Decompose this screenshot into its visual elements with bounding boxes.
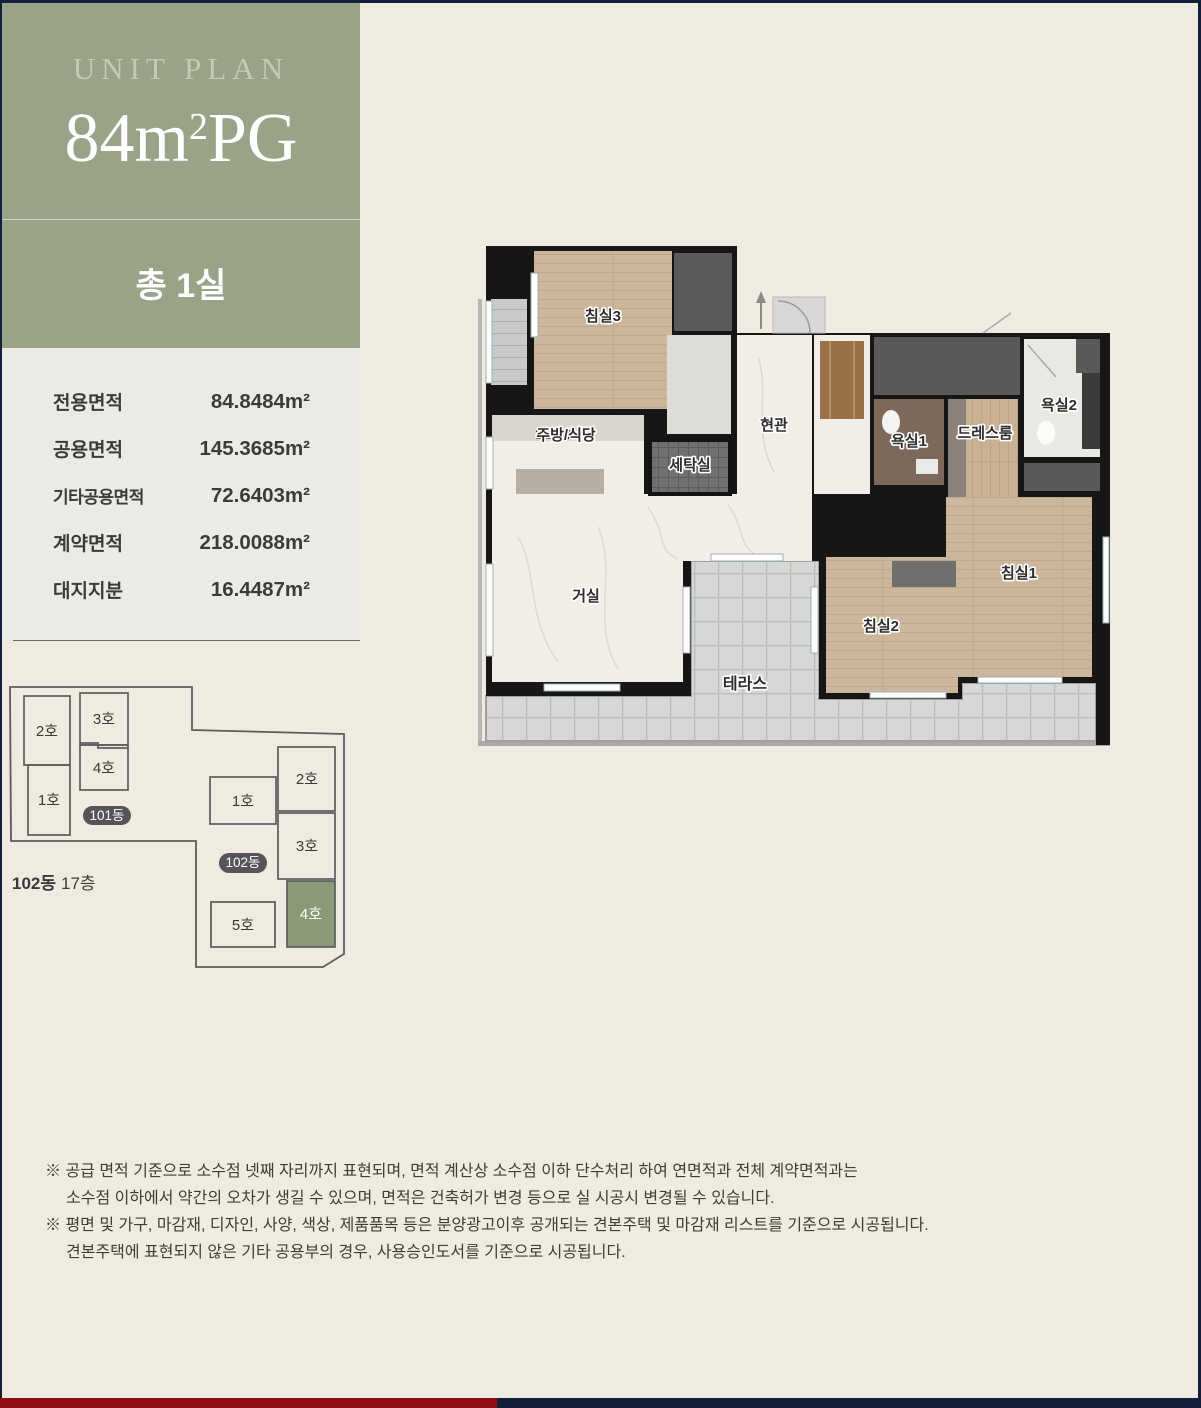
toilet2 [1037, 421, 1055, 445]
unit-size-main: 84m [65, 100, 189, 177]
entry-floor [737, 335, 812, 494]
room-count: 총 1실 [2, 258, 360, 307]
label-bath2: 욕실2 [1041, 397, 1077, 414]
sink1 [916, 459, 938, 474]
bedroom3-floor [534, 251, 672, 409]
label-laundry: 세탁실 [669, 456, 710, 474]
area-table: 전용면적 84.8484m² 공용면적 145.3685m² 기타공용면적 72… [2, 348, 360, 641]
bedroom1-floor [946, 497, 1092, 677]
entry-arrow-icon [756, 291, 766, 303]
bath2-vanity [1082, 365, 1100, 449]
unit-size-superscript: 2 [189, 106, 208, 148]
site-caption-floor: 17층 [61, 874, 96, 893]
site-plan: 2호 1호 3호 4호 101동 1호 2호 3호 4호 5호 102동 102… [8, 686, 360, 978]
bath2-corner-closet [1076, 339, 1100, 373]
closet-under-bath2 [1024, 463, 1100, 491]
kitchen-island [516, 469, 604, 494]
label-bath1: 욕실1 [891, 433, 927, 450]
footnotes: ※ 공급 면적 기준으로 소수점 넷째 자리까지 표현되며, 면적 계산상 소수… [45, 1158, 929, 1266]
balcony-floor [491, 299, 527, 385]
bottom-bar-red [0, 1398, 497, 1408]
unit-label-highlighted: 4호 [300, 906, 322, 923]
header-panel: UNIT PLAN 84m2PG 총 1실 [2, 3, 360, 348]
header-eyebrow: UNIT PLAN [2, 51, 360, 87]
label-terrace: 테라스 [723, 675, 767, 693]
pantry-strip [667, 335, 731, 434]
table-row: 기타공용면적 72.6403m² [2, 472, 360, 519]
entry-vestibule [773, 297, 825, 333]
door-leaf [983, 313, 1011, 333]
dressroom-wardrobe [948, 399, 966, 497]
area-label: 전용면적 [53, 388, 153, 415]
table-row: 계약면적 218.0088m² [2, 519, 360, 566]
unit-label: 5호 [232, 917, 254, 934]
header-divider [2, 219, 360, 220]
bottom-bar-navy [497, 1398, 1201, 1408]
area-label: 기타공용면적 [53, 483, 153, 508]
toilet1 [882, 410, 900, 434]
table-row: 공용면적 145.3685m² [2, 425, 360, 472]
table-row: 대지지분 16.4487m² [2, 566, 360, 613]
building-102-badge-label: 102동 [226, 855, 261, 870]
area-value: 84.8484m² [153, 390, 310, 414]
label-bedroom3: 침실3 [585, 308, 621, 325]
area-label: 공용면적 [53, 435, 153, 462]
unit-label: 4호 [93, 760, 115, 777]
site-caption-building: 102동 [12, 874, 56, 893]
label-entry: 현관 [760, 417, 788, 434]
shoe-bench [820, 341, 864, 419]
label-dressroom: 드레스룸 [957, 425, 1012, 442]
unit-plan-page: UNIT PLAN 84m2PG 총 1실 전용면적 84.8484m² 공용면… [0, 0, 1201, 1408]
area-label: 대지지분 [53, 576, 153, 603]
area-value: 16.4487m² [153, 578, 310, 602]
area-value: 218.0088m² [153, 531, 310, 555]
footnote-line: 소수점 이하에서 약간의 오차가 생길 수 있으며, 면적은 건축허가 변경 등… [66, 1185, 929, 1212]
area-label: 계약면적 [53, 529, 153, 556]
bedroom2-closet [892, 561, 956, 587]
label-living: 거실 [572, 588, 600, 605]
unit-size-tail: PG [208, 100, 297, 177]
unit-label: 1호 [232, 793, 254, 810]
footnote-line: 견본주택에 표현되지 않은 기타 공용부의 경우, 사용승인도서를 기준으로 시… [66, 1239, 929, 1266]
closet-top [674, 253, 732, 331]
label-kitchen: 주방/식당 [536, 426, 596, 444]
footnote-line: ※ 공급 면적 기준으로 소수점 넷째 자리까지 표현되며, 면적 계산상 소수… [45, 1158, 929, 1185]
table-underline [13, 640, 360, 641]
building-101-badge-label: 101동 [90, 808, 125, 823]
wardrobe-strip [874, 337, 1020, 395]
area-value: 72.6403m² [153, 484, 310, 508]
unit-label: 3호 [296, 838, 318, 855]
label-bedroom2: 침실2 [863, 618, 899, 635]
railing-left [478, 299, 482, 745]
dressroom-floor [966, 399, 1018, 497]
unit-label: 2호 [36, 723, 58, 740]
area-value: 145.3685m² [153, 437, 310, 461]
site-caption: 102동17층 [12, 874, 96, 893]
footnote-line: ※ 평면 및 가구, 마감재, 디자인, 사양, 색상, 제품품목 등은 분양광… [45, 1212, 929, 1239]
label-bedroom1: 침실1 [1001, 565, 1037, 582]
floor-plan: 침실3 주방/식당 세탁실 현관 욕실1 드레스룸 욕실2 침실1 침실2 거실… [478, 237, 1112, 749]
unit-label: 1호 [38, 792, 60, 809]
unit-label: 3호 [93, 711, 115, 728]
unit-size-title: 84m2PG [2, 99, 360, 179]
table-row: 전용면적 84.8484m² [2, 378, 360, 425]
unit-label: 2호 [296, 771, 318, 788]
